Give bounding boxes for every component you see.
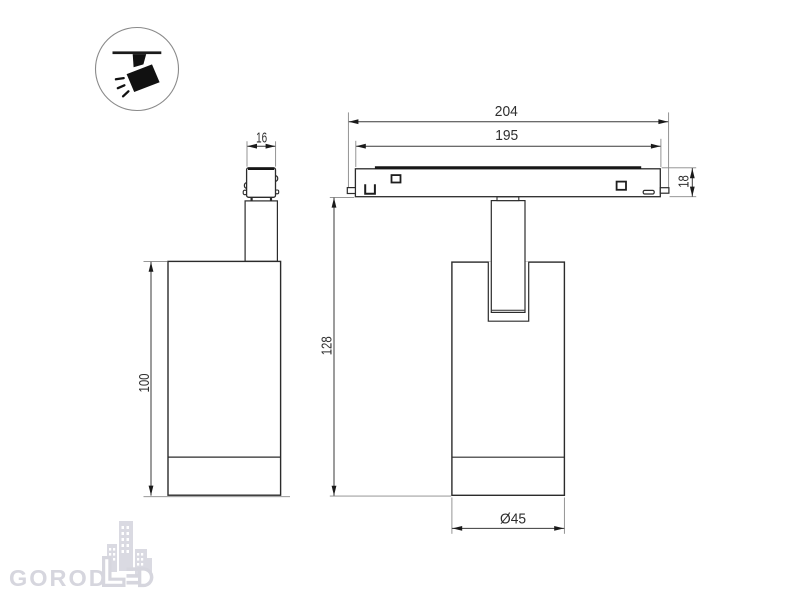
svg-text:Ø45: Ø45: [500, 510, 526, 527]
svg-text:204: 204: [495, 103, 518, 120]
svg-text:128: 128: [318, 336, 335, 355]
svg-text:16: 16: [256, 130, 267, 147]
svg-text:100: 100: [136, 374, 153, 393]
svg-text:18: 18: [676, 175, 693, 188]
svg-text:195: 195: [495, 127, 518, 144]
svg-text:GOROD: GOROD: [9, 565, 108, 591]
